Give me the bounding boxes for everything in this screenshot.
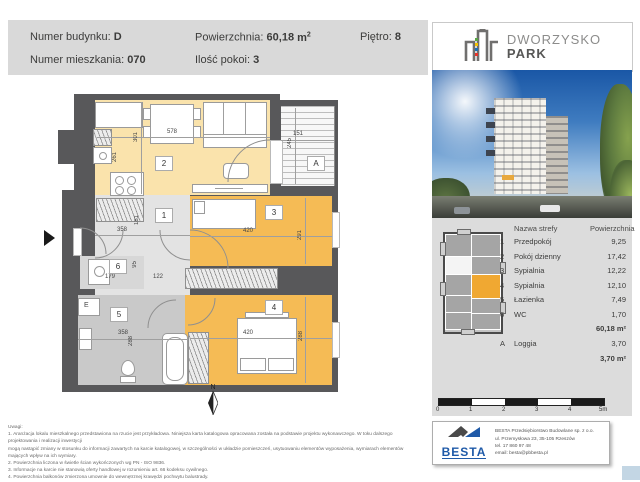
dim-95: 95 [132, 261, 138, 268]
mini-unit [471, 256, 501, 275]
dim-245: 245 [287, 138, 293, 148]
north-compass-icon: N [204, 384, 222, 417]
area-unit: m2 [297, 32, 311, 44]
tower-annex [546, 116, 568, 194]
besta-roof-icon [447, 425, 481, 438]
besta-logo: BESTA [433, 425, 495, 461]
area-table: Nazwa strefy Powierzchnia 1 Przedpokój 9… [500, 224, 626, 369]
mini-unit [471, 298, 501, 314]
dim-288-bed4: 288 [298, 331, 304, 341]
scale-bar [438, 398, 605, 406]
dim-358-hall: 358 [117, 227, 127, 233]
area-field: Powierzchnia: 60,18 m2 [195, 31, 311, 44]
catalog-card: { "header": { "building_label": "Numer b… [0, 0, 640, 480]
table-row: 5 Łazienka 7,49 [500, 295, 626, 304]
dim-288-bath: 288 [128, 336, 134, 346]
brand-line1: DWORZYSKO [507, 33, 601, 47]
balcony [486, 136, 495, 142]
area-total: 60,18 m² [500, 324, 626, 333]
mini-unit [471, 234, 501, 257]
area-table-header: Nazwa strefy Powierzchnia [500, 224, 626, 233]
rooms-count-value: 3 [253, 54, 259, 66]
building-render-photo [432, 70, 632, 218]
table-row: 3 Sypialnia 12,22 [500, 266, 626, 275]
north-label: N [204, 384, 222, 391]
col-name-header: Nazwa strefy [514, 224, 590, 233]
area-value: 60,18 [267, 32, 295, 44]
room-label-6: 6 [109, 259, 127, 274]
floor-value: 8 [395, 31, 401, 43]
room-label-1: 1 [155, 208, 173, 223]
besta-name: BESTA [442, 446, 487, 459]
dworzysko-logo-icon [464, 28, 500, 67]
table-row: 1 Przedpokój 9,25 [500, 237, 626, 246]
mini-balcony [461, 329, 475, 335]
area-label: Powierzchnia: [195, 32, 263, 44]
mini-floor-locator [443, 232, 503, 334]
mini-unit [445, 295, 472, 313]
room-label-5: 5 [110, 307, 128, 322]
floor-field: Piętro: 8 [360, 31, 401, 43]
apartment-number-label: Numer mieszkania: [30, 54, 124, 66]
table-row-loggia: A Loggia 3,70 [500, 339, 626, 348]
dim-420-bed3: 420 [243, 228, 253, 234]
mini-balcony [457, 229, 471, 235]
dim-358-bath: 358 [118, 330, 128, 336]
dim-301: 301 [133, 132, 139, 142]
building-number: Numer budynku: D [30, 31, 122, 43]
car [540, 205, 560, 212]
brand-logo: DWORZYSKO PARK [432, 22, 633, 72]
car [454, 207, 470, 214]
mini-unit-highlighted [471, 274, 501, 299]
floor-label: Piętro: [360, 31, 392, 43]
dim-179: 179 [105, 274, 115, 280]
header-bar: Numer budynku: D Numer mieszkania: 070 P… [8, 20, 428, 75]
facade-accent [502, 175, 514, 180]
floor-plan: E 578 301 261 151 245 420 291 358 181 17… [55, 88, 347, 392]
table-row: 4 Sypialnia 12,10 [500, 281, 626, 290]
mini-unit [471, 313, 501, 330]
dim-291: 291 [297, 230, 303, 240]
developer-card: BESTA BESTA Przedsiębiorstwo Budowlane s… [432, 421, 610, 465]
dim-578: 578 [167, 129, 177, 135]
corner-decoration [622, 466, 640, 480]
besta-address: BESTA Przedsiębiorstwo Budowlane sp. z o… [495, 428, 594, 458]
brand-name: DWORZYSKO PARK [507, 33, 601, 60]
mini-unit [445, 274, 472, 296]
dim-151: 151 [293, 131, 303, 137]
table-row: 2 Pokój dzienny 17,42 [500, 252, 626, 261]
mini-unit [445, 312, 472, 330]
apartment-number-value: 070 [127, 54, 145, 66]
dim-261: 261 [112, 152, 118, 162]
mini-unit [445, 234, 472, 257]
col-area-header: Powierzchnia [590, 224, 626, 233]
rooms-count: Ilość pokoi: 3 [195, 54, 259, 66]
entrance-arrow-icon [44, 230, 55, 246]
brand-line2: PARK [507, 47, 601, 61]
room-label-a: A [307, 156, 325, 171]
balcony [486, 108, 495, 114]
balcony [486, 150, 495, 156]
mini-balcony [440, 282, 446, 296]
apartment-number: Numer mieszkania: 070 [30, 54, 146, 66]
room-label-4: 4 [265, 300, 283, 315]
dim-420-bed4: 420 [243, 330, 253, 336]
footnotes: Uwagi: 1. Aranżacja lokalu mieszkalnego … [8, 424, 420, 482]
building-number-label: Numer budynku: [30, 31, 111, 43]
building-number-value: D [114, 31, 122, 43]
mini-balcony [440, 242, 446, 256]
notes-title: Uwagi: [8, 424, 420, 431]
loggia-total: 3,70 m² [500, 354, 626, 363]
room-label-3: 3 [265, 205, 283, 220]
room-label-2: 2 [155, 156, 173, 171]
mini-core [445, 256, 472, 275]
door-arcs [55, 88, 347, 392]
rooms-count-label: Ilość pokoi: [195, 54, 250, 66]
balcony [486, 122, 495, 128]
dim-181: 181 [134, 215, 140, 225]
table-row: 6 WC 1,70 [500, 310, 626, 319]
dim-122: 122 [153, 274, 163, 280]
